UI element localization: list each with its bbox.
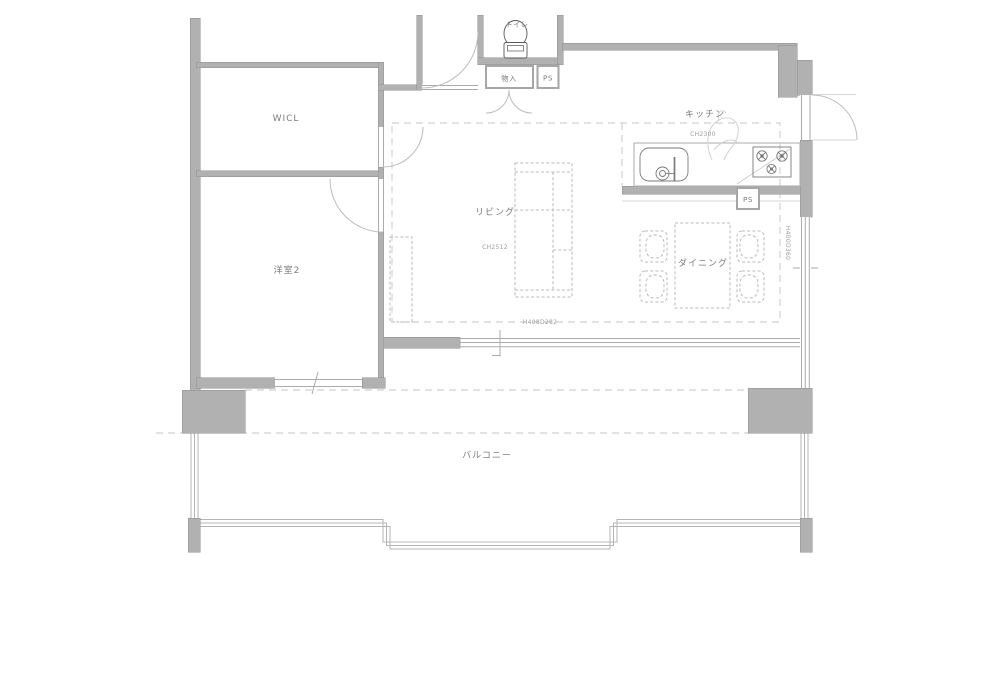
windows: [275, 217, 818, 394]
bedroom2-label: 洋室2: [274, 264, 301, 276]
furniture-tv-board: [390, 237, 412, 322]
stove-icon: [737, 147, 791, 184]
railing-post-left: [188, 518, 200, 552]
hall-door-arc: [422, 32, 478, 88]
kitchen-counter: [634, 143, 800, 186]
balcony-pillar-right: [748, 388, 812, 433]
wall-left-exterior: [190, 18, 200, 390]
wall-top-right-corner: [797, 60, 812, 95]
floor-plan: WICL 洋室2 リビング CH2512 キッチン CH2300 ダイニング バ…: [0, 0, 1000, 700]
bedroom2-window: [275, 372, 362, 394]
railing-side-left: [191, 433, 198, 519]
wall-top-right-block: [778, 45, 797, 97]
sofa-outline: [515, 163, 572, 297]
wall-right-mid: [800, 140, 812, 217]
railing-front: [195, 520, 808, 550]
wall-toilet-left: [478, 15, 484, 62]
burner-icon: [777, 151, 787, 161]
living-label: リビング: [475, 206, 515, 218]
bedroom2-door-arc: [330, 179, 383, 232]
dining-label: ダイニング: [678, 257, 728, 269]
kitchen-side-door-arc: [812, 95, 857, 140]
wall-bedroom2-bottom-right: [362, 378, 385, 389]
toilet-label: トイレ: [505, 20, 528, 29]
storage-double-door-arc-left: [486, 90, 509, 113]
bedroom2-door-opening: [378, 179, 385, 232]
dining-chair: [737, 231, 764, 262]
balcony-pillar-left: [182, 390, 245, 433]
wall-hall-vertical-lower: [378, 232, 384, 385]
dining-chair: [737, 271, 764, 302]
burner-icon: [757, 151, 767, 161]
wall-toilet-right: [557, 15, 563, 65]
sink-icon: [640, 148, 688, 181]
wall-hall-vertical-upper: [378, 62, 384, 127]
wall-hall-horizontal: [378, 85, 422, 91]
wall-kitchen-counter-back: [622, 186, 800, 194]
furniture-sofa: [515, 163, 572, 297]
wall-hall-vertical-mid: [378, 167, 384, 179]
wall-bedroom2-bottom-left: [196, 378, 275, 389]
dining-window-annotation: H400D360: [784, 226, 791, 260]
railing-side-right: [801, 433, 808, 519]
living-ceiling-height: CH2512: [482, 244, 508, 251]
balcony-window-annotation: H408D282: [523, 319, 557, 326]
ps-label-hall: PS: [543, 74, 553, 83]
wall-toilet-bottom: [478, 58, 564, 65]
kitchen-fixtures: [622, 111, 800, 209]
wall-wicl-top: [196, 62, 383, 68]
ps-label-kitchen: PS: [743, 195, 753, 204]
wicl-label: WICL: [273, 114, 300, 124]
dining-side-window: [793, 217, 818, 388]
wall-kitchen-top: [562, 43, 797, 50]
dining-chair: [640, 271, 667, 302]
railing-post-right: [800, 518, 812, 552]
kitchen-side-door-opening: [800, 95, 812, 140]
kitchen-ceiling-height: CH2300: [690, 131, 716, 138]
wall-hallway-left: [417, 15, 423, 90]
wall-wicl-bedroom-divider: [196, 171, 378, 177]
storage-double-door-arc-right: [509, 90, 532, 113]
kitchen-label: キッチン: [685, 109, 725, 120]
floor-plan-drawing: WICL 洋室2 リビング CH2512 キッチン CH2300 ダイニング バ…: [0, 0, 1000, 700]
wall-ldk-bottom-left: [383, 337, 460, 348]
living-balcony-window: [460, 330, 800, 357]
burner-icon: [767, 164, 776, 173]
balcony-label: バルコニー: [462, 450, 512, 461]
dining-chair: [640, 231, 667, 262]
wicl-door-arc: [383, 127, 423, 167]
storage-label: 物入: [501, 74, 516, 83]
wicl-door-opening: [378, 127, 385, 167]
